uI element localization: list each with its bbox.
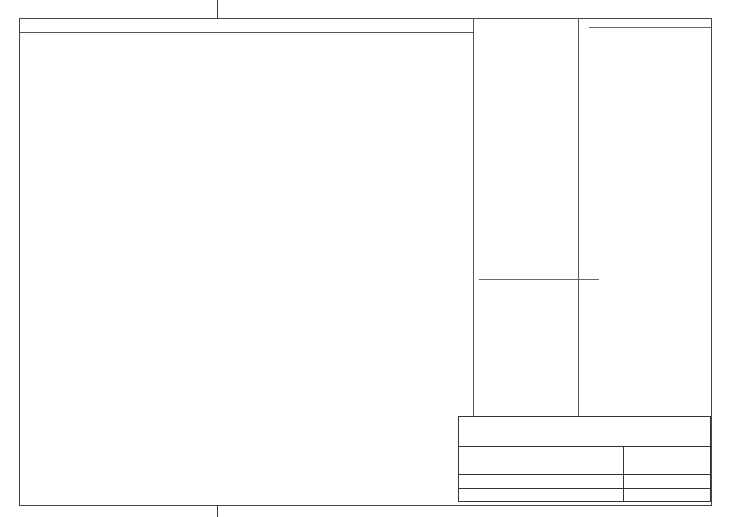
title-block-row-project	[459, 475, 710, 489]
title-block-row-formwork	[459, 489, 710, 502]
title-block-row-client	[459, 447, 710, 475]
file-cell	[624, 475, 710, 488]
side-elevation-view	[40, 362, 395, 512]
cycle-info-table	[479, 276, 599, 280]
material-list-header	[589, 26, 711, 28]
formwork-cell	[459, 489, 624, 502]
wall-section-view	[478, 92, 583, 242]
author-value	[624, 447, 710, 457]
drawing-sheet	[0, 0, 730, 517]
client-value	[459, 447, 623, 456]
title-block	[458, 416, 711, 502]
project-cell	[459, 475, 624, 488]
author-cell	[624, 447, 710, 474]
title-block-company-cell	[459, 417, 710, 447]
date-cell	[624, 489, 710, 502]
fold-mark-top	[217, 0, 218, 18]
divider-plan-section	[473, 18, 474, 416]
material-list	[583, 24, 711, 28]
client-cell	[459, 447, 624, 474]
cycle-info-header	[479, 279, 599, 280]
formwork-plan-view	[19, 18, 473, 354]
